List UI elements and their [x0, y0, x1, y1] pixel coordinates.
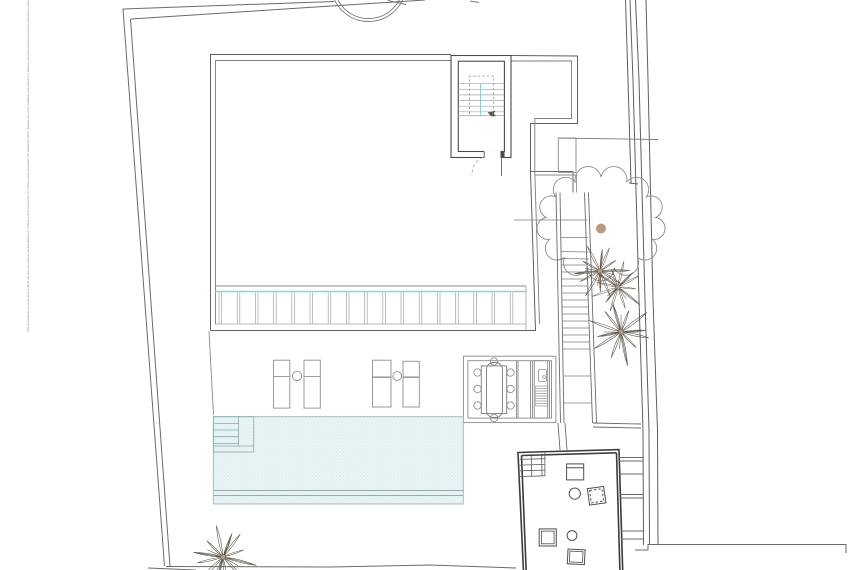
- svg-text:este documento es copia de la: este documento es copia de la original d…: [26, 0, 30, 332]
